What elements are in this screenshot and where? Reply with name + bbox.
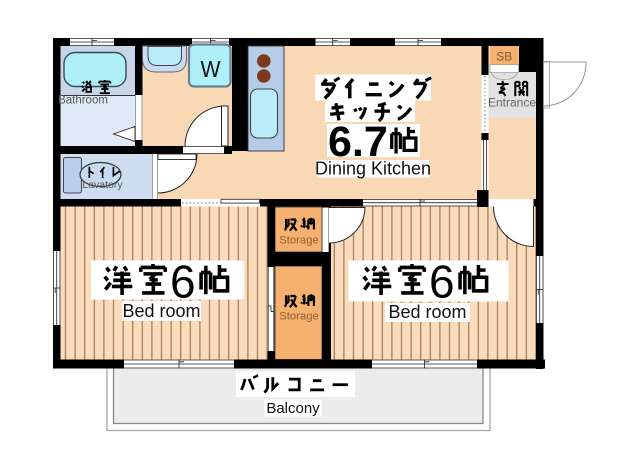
svg-text:SB: SB [496,50,512,64]
svg-text:6: 6 [429,256,455,308]
svg-text:Dining Kitchen: Dining Kitchen [315,159,431,179]
svg-text:Bed room: Bed room [388,302,466,322]
svg-text:Balcony: Balcony [266,400,320,417]
svg-text:Lavatory: Lavatory [82,179,123,191]
svg-text:Bed room: Bed room [122,301,200,321]
svg-text:6: 6 [170,256,196,308]
svg-text:Entrance: Entrance [488,96,536,110]
svg-text:Storage: Storage [279,311,319,323]
svg-text:W: W [201,56,221,82]
svg-text:Storage: Storage [279,235,319,247]
svg-text:Bathroom: Bathroom [58,95,108,107]
